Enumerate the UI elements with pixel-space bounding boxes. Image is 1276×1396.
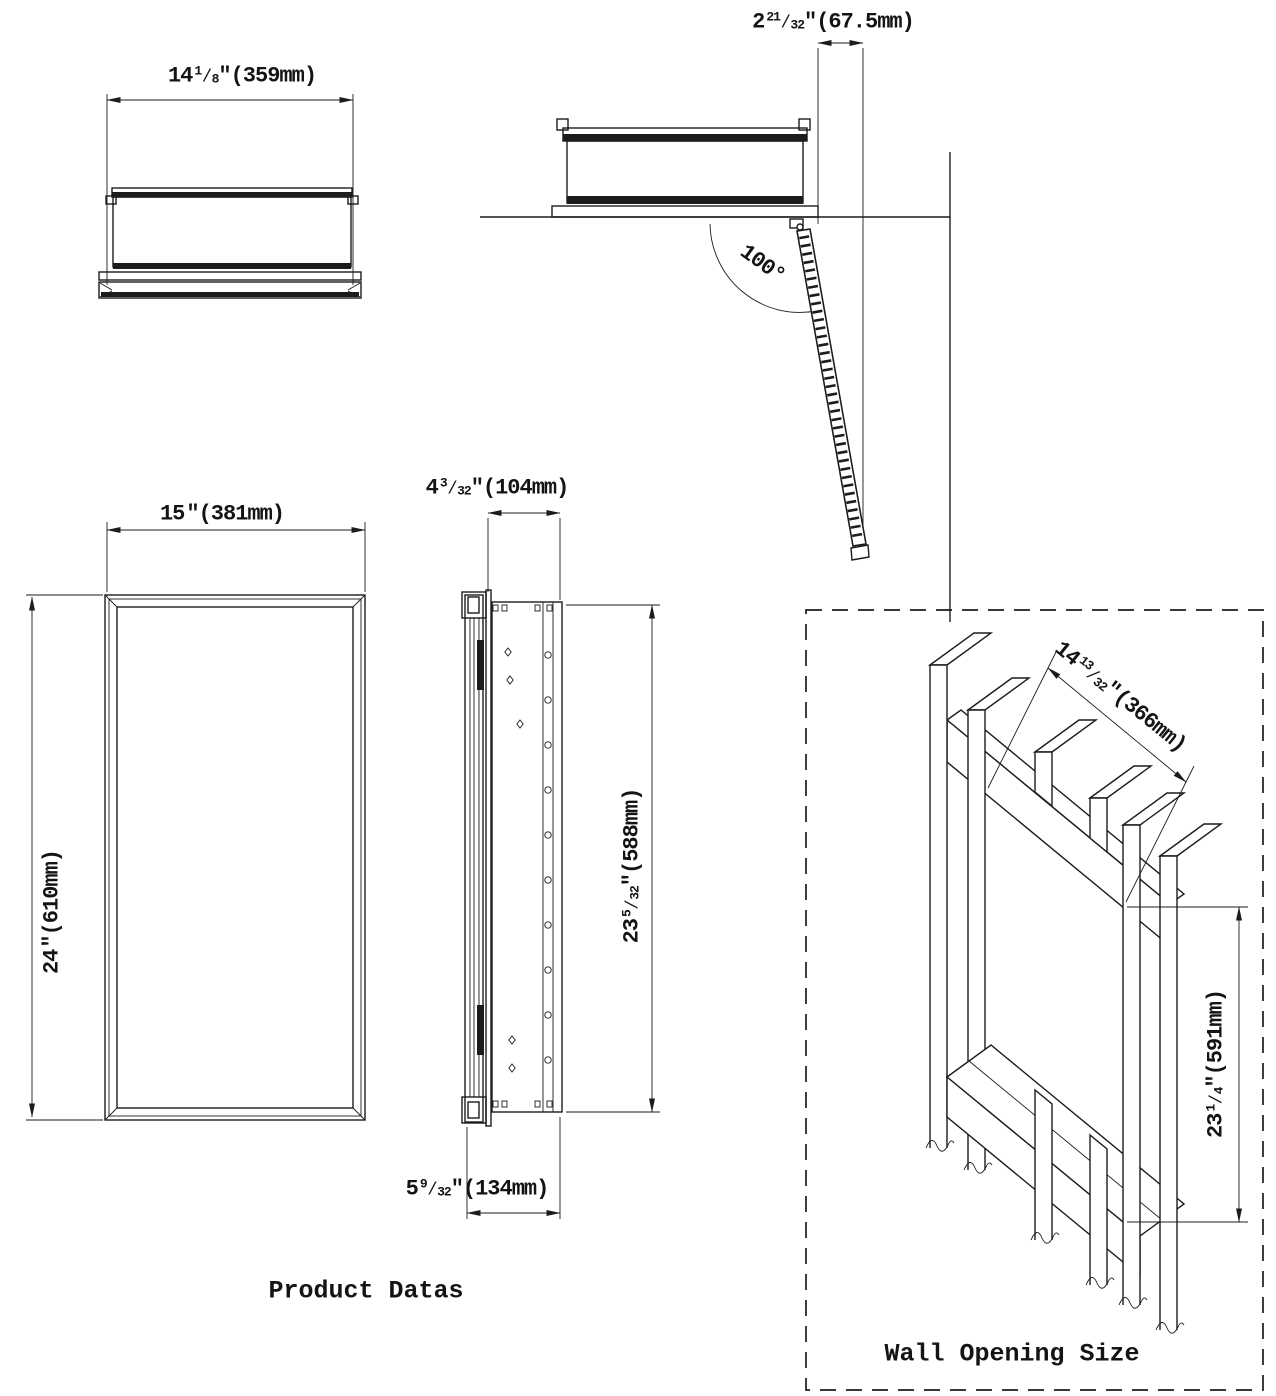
dashed-border: [806, 610, 1263, 1390]
drawing-canvas: [0, 0, 1276, 1396]
wall-opening-size-label: Wall Opening Size: [884, 1340, 1139, 1369]
dim-whole: 2: [752, 10, 764, 35]
mitre-line: [100, 283, 112, 290]
cabinet-side-panel: [492, 602, 562, 1112]
dim-inch-mark: ″: [804, 10, 816, 35]
top-view-drawing: [99, 94, 361, 298]
dim-mm: (588mm): [620, 789, 645, 874]
door-top-notch: [468, 597, 479, 613]
dim-inch-mark: ″: [471, 476, 483, 501]
hinge-pin: [797, 224, 803, 230]
stud-top-face: [968, 678, 1029, 710]
stud-top-face: [1123, 793, 1184, 825]
mitre-line: [105, 1108, 117, 1120]
frame-lip: [486, 590, 491, 1126]
left-king-stud: [930, 665, 947, 1148]
dim-fraction: 9⁄32: [420, 1177, 451, 1202]
door-bottom-notch: [468, 1102, 479, 1118]
face-flange: [552, 206, 818, 217]
dim-fraction: 21⁄32: [766, 10, 804, 35]
hinge-block: [477, 640, 484, 690]
dim-whole: 14: [168, 64, 192, 89]
dim-whole: 4: [426, 476, 438, 501]
dim-top-width: 141⁄8″(359mm): [168, 64, 316, 89]
dim-opening-height: 231⁄4″(591mm): [1204, 990, 1229, 1138]
recessed-box-top-shadow: [563, 134, 807, 141]
front-view-drawing: [26, 522, 365, 1120]
cripple-stud-lower: [1090, 1135, 1107, 1285]
rail-shadow: [112, 192, 352, 197]
door-open-side-view: [480, 43, 950, 622]
hinge-block: [477, 1005, 484, 1055]
dim-whole: 15: [160, 502, 184, 527]
mirror-door-outer: [105, 595, 365, 1120]
door-front-shadow: [101, 292, 359, 297]
wall-opening-diagram: [806, 610, 1263, 1390]
cabinet-body: [113, 197, 351, 267]
dim-mm: (610mm): [40, 850, 65, 935]
dim-side-depth-top: 43⁄32″(104mm): [426, 476, 569, 501]
dim-mm: (104mm): [483, 476, 568, 501]
stud-top-face: [930, 633, 991, 665]
cripple-stud-lower: [1035, 1090, 1052, 1240]
dim-fraction: 3⁄32: [440, 476, 471, 501]
dim-front-width: 15″(381mm): [160, 502, 284, 527]
dim-mm: (381mm): [199, 502, 284, 527]
mirror-door-inner: [117, 607, 353, 1108]
dim-side-depth-bottom: 59⁄32″(134mm): [406, 1177, 549, 1202]
mitre-line: [105, 595, 117, 607]
open-door-panel: [797, 229, 866, 546]
door-frame-bar: [99, 272, 361, 280]
body-front-edge: [113, 263, 351, 269]
dim-whole: 24: [40, 950, 65, 974]
mitre-line: [353, 595, 365, 607]
dim-fraction: 5⁄32: [620, 886, 645, 917]
right-king-stud: [1160, 856, 1177, 1330]
stud-top-face: [1160, 824, 1221, 856]
dim-fraction: 1⁄8: [194, 64, 218, 89]
cripple-stud-top-face: [1090, 766, 1151, 798]
dim-door-projection: 221⁄32″(67.5mm): [752, 10, 914, 35]
dim-front-height: 24″(610mm): [40, 850, 65, 974]
shelf-pin-holes: [545, 652, 551, 1063]
dim-inch-mark: ″: [186, 502, 198, 527]
dim-whole: 23: [620, 919, 645, 943]
dim-mm: (359mm): [231, 64, 316, 89]
dim-mm: (591mm): [1204, 990, 1229, 1075]
dim-inch-mark: ″: [40, 935, 65, 947]
dim-inch-mark: ″: [218, 64, 230, 89]
technical-drawing-page: 141⁄8″(359mm) 221⁄32″(67.5mm) 15″(381mm)…: [0, 0, 1276, 1396]
dim-inch-mark: ″: [451, 1177, 463, 1202]
right-jack-stud: [1123, 825, 1140, 1305]
dim-inch-mark: ″: [1204, 1075, 1229, 1087]
cripple-stud-top-face: [1035, 720, 1096, 752]
dim-mm: (67.5mm): [816, 10, 914, 35]
mitre-line: [348, 283, 360, 290]
product-datas-label: Product Datas: [268, 1277, 463, 1306]
dim-whole: 23: [1204, 1114, 1229, 1138]
dim-fraction: 1⁄4: [1204, 1088, 1229, 1112]
door-end-cap: [851, 545, 869, 560]
dim-side-height: 235⁄32″(588mm): [620, 789, 645, 944]
recessed-box-bottom-shadow: [567, 196, 803, 204]
panel-screw-holes: [505, 648, 523, 1072]
recessed-box: [567, 141, 803, 203]
dim-whole: 5: [406, 1177, 418, 1202]
dim-inch-mark: ″: [620, 874, 645, 886]
dim-mm: (134mm): [463, 1177, 548, 1202]
mirror-bevel-line: [109, 599, 361, 1116]
mitre-line: [353, 1108, 365, 1120]
